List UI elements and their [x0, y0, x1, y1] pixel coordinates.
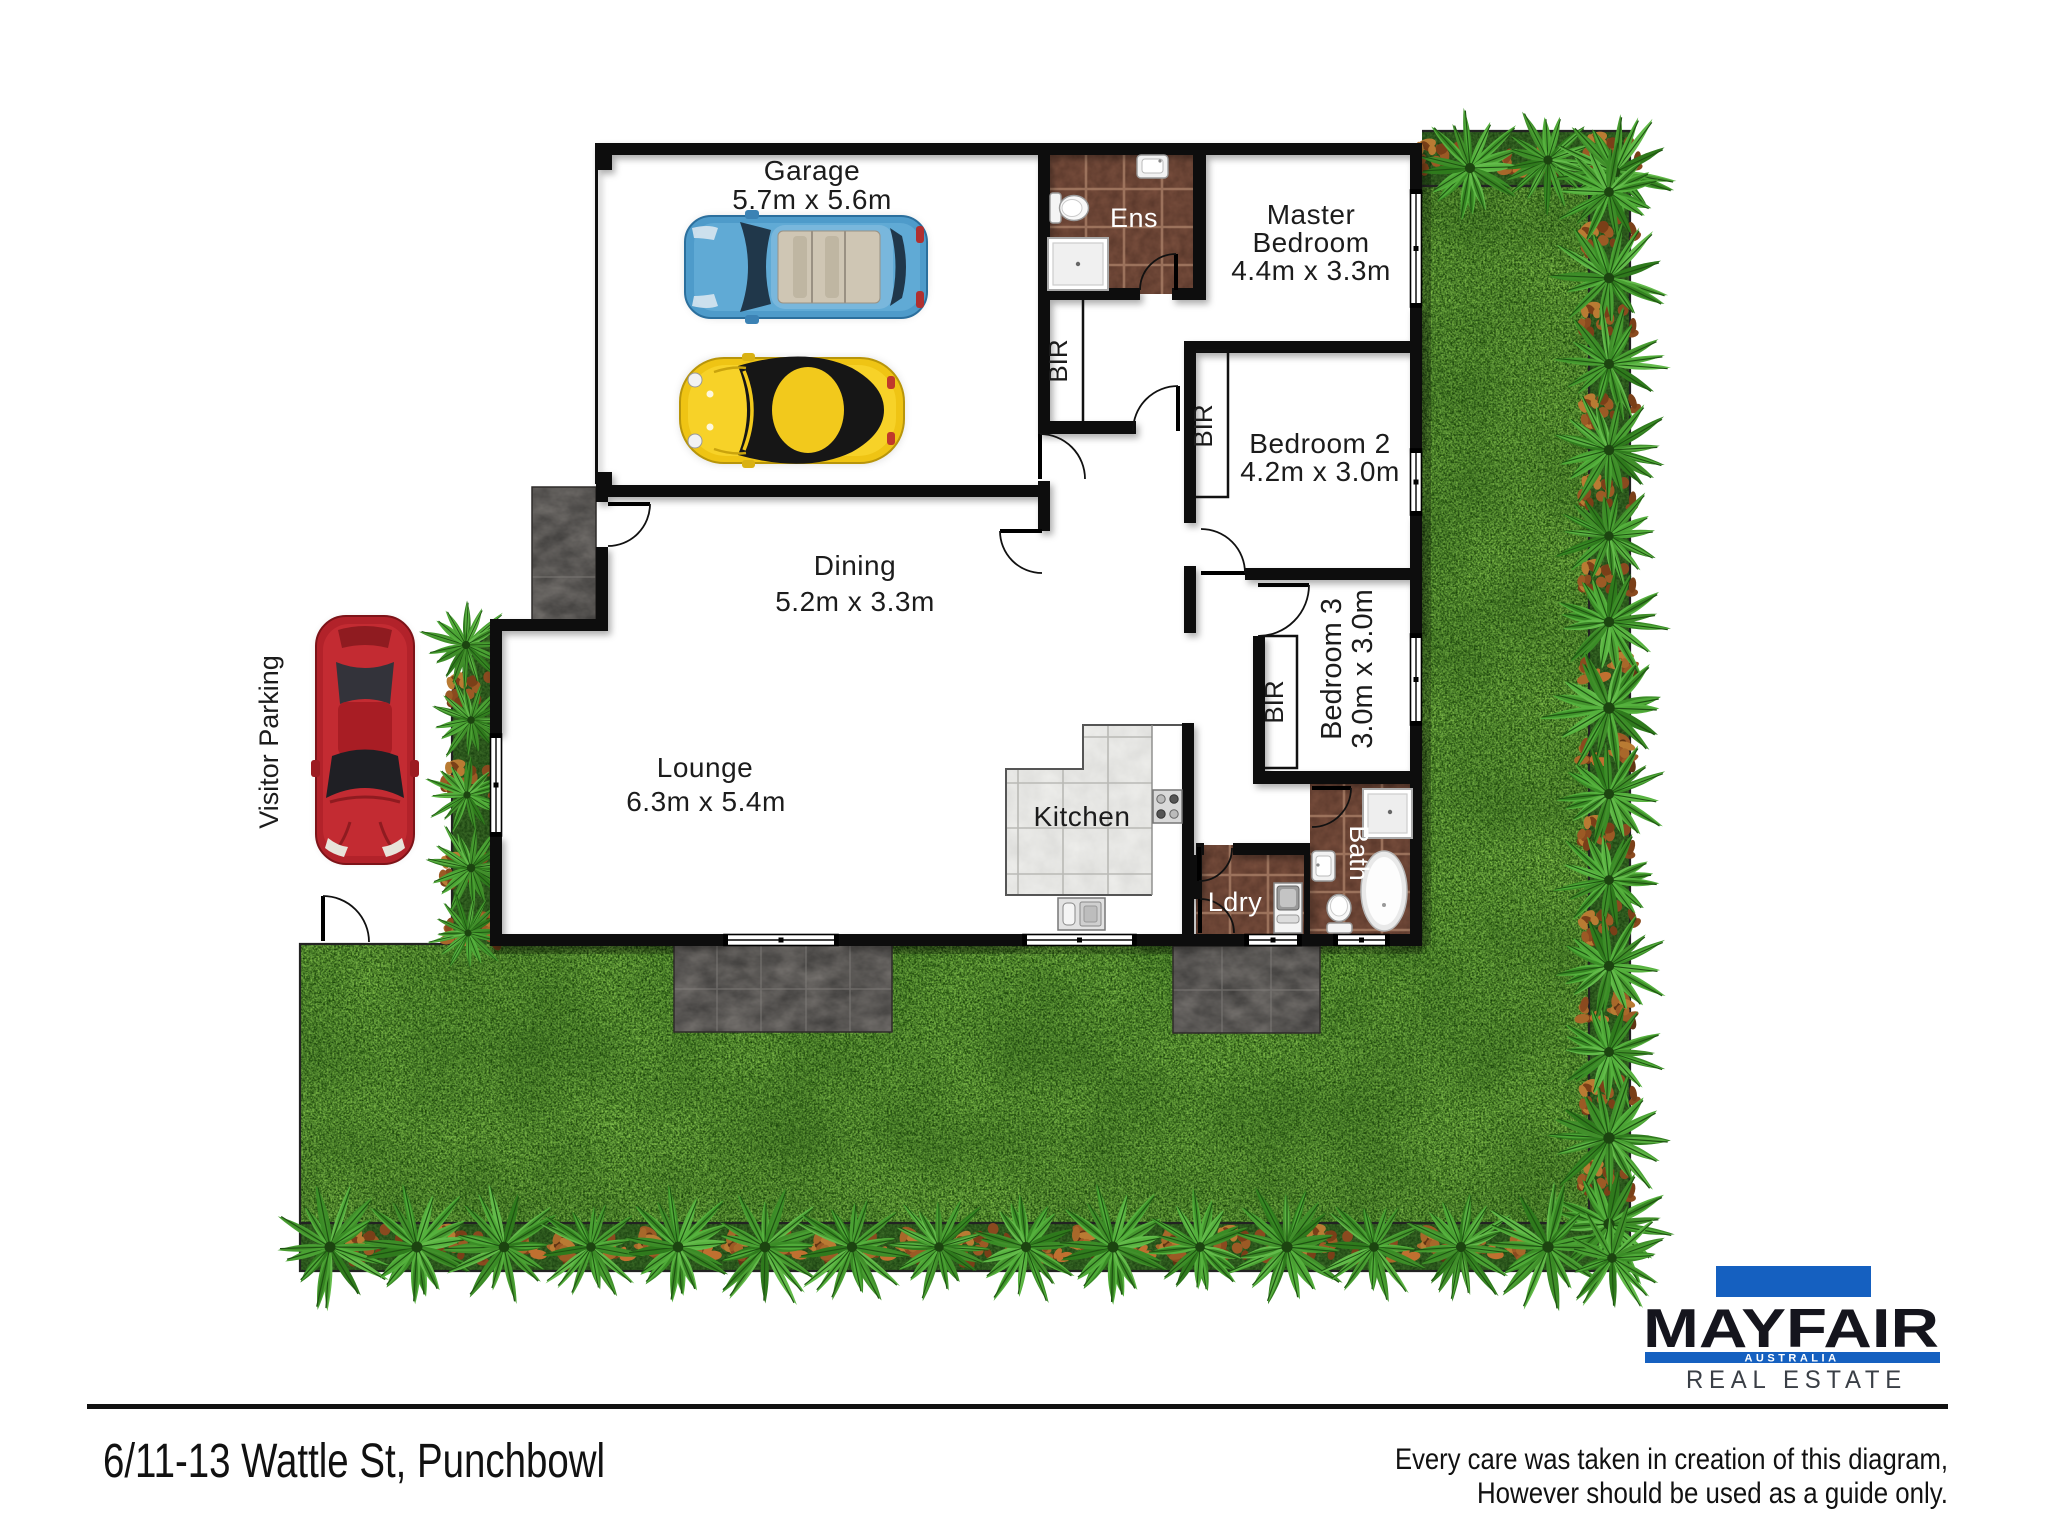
svg-text:5.7m x 5.6m: 5.7m x 5.6m: [732, 184, 892, 215]
svg-text:BIR: BIR: [1043, 339, 1073, 382]
svg-text:AUSTRALIA: AUSTRALIA: [1744, 1353, 1839, 1365]
svg-text:BIR: BIR: [1188, 404, 1218, 447]
svg-text:6.3m x 5.4m: 6.3m x 5.4m: [626, 786, 786, 817]
svg-text:BIR: BIR: [1259, 680, 1289, 723]
svg-text:Bedroom: Bedroom: [1252, 227, 1369, 258]
svg-text:However should be used as a gu: However should be used as a guide only.: [1477, 1477, 1948, 1510]
svg-text:Kitchen: Kitchen: [1034, 801, 1131, 832]
svg-text:Garage: Garage: [764, 155, 860, 186]
svg-text:Ldry: Ldry: [1208, 887, 1263, 917]
svg-text:Lounge: Lounge: [657, 752, 753, 783]
svg-text:4.2m x 3.0m: 4.2m x 3.0m: [1240, 456, 1400, 487]
svg-text:Dining: Dining: [814, 550, 896, 581]
svg-text:6/11-13 Wattle St, Punchbowl: 6/11-13 Wattle St, Punchbowl: [103, 1435, 605, 1488]
svg-text:Master: Master: [1267, 199, 1356, 230]
svg-text:Bedroom 2: Bedroom 2: [1249, 428, 1390, 459]
svg-text:Visitor Parking: Visitor Parking: [254, 655, 284, 829]
svg-text:Ens: Ens: [1110, 203, 1158, 233]
svg-text:Every care was taken in creati: Every care was taken in creation of this…: [1395, 1443, 1948, 1476]
svg-text:MAYFAIR: MAYFAIR: [1643, 1297, 1939, 1359]
svg-text:4.4m x 3.3m: 4.4m x 3.3m: [1231, 255, 1391, 286]
svg-text:REAL ESTATE: REAL ESTATE: [1686, 1366, 1907, 1394]
svg-text:Bedroom 3: Bedroom 3: [1316, 598, 1348, 740]
svg-text:5.2m x 3.3m: 5.2m x 3.3m: [775, 586, 935, 617]
svg-text:3.0m x 3.0m: 3.0m x 3.0m: [1347, 589, 1379, 749]
svg-text:Bath: Bath: [1344, 825, 1374, 881]
